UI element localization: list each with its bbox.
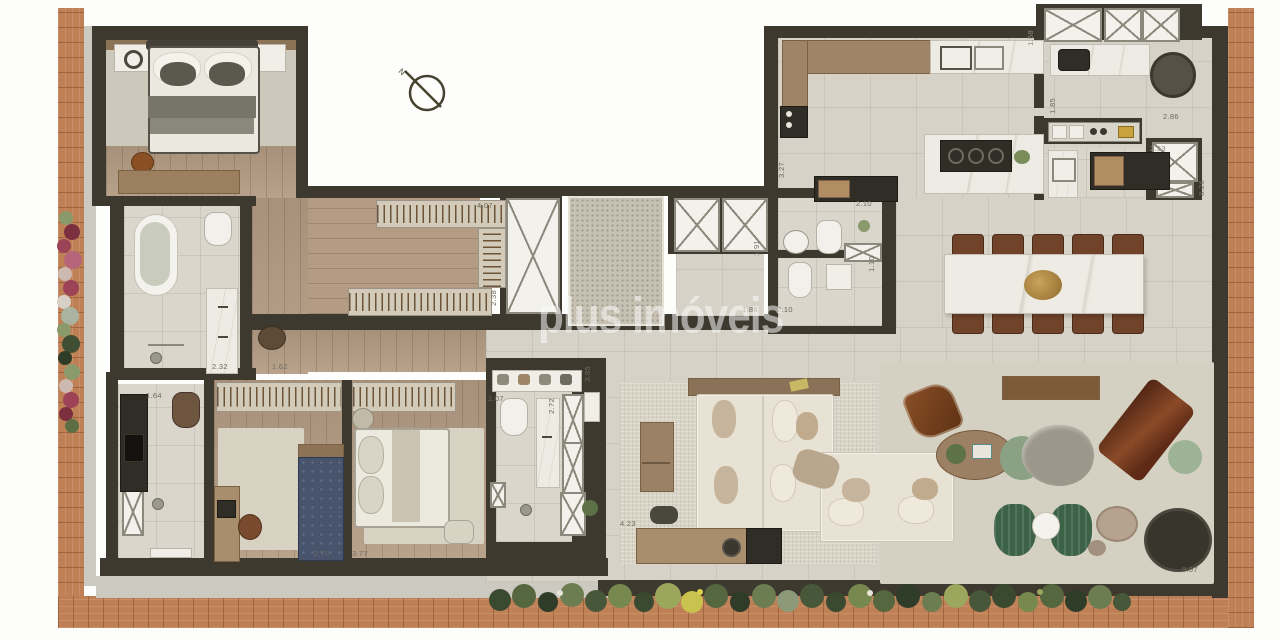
dim-label: 1.85 — [1049, 98, 1057, 114]
stool-sage — [1168, 440, 1202, 474]
shower-head — [150, 352, 162, 364]
bench — [118, 170, 240, 194]
dim-label: 3.77 — [352, 550, 368, 558]
table-books — [972, 444, 992, 459]
dim-label: 2.72 — [548, 398, 556, 414]
plant-small — [858, 220, 870, 232]
wall — [1212, 26, 1228, 598]
toilet-master — [204, 212, 232, 246]
wall — [106, 372, 118, 572]
pillow — [358, 476, 384, 514]
shaft-top — [1142, 8, 1180, 42]
blanket-fold — [150, 118, 254, 134]
robe-stool — [258, 326, 286, 350]
centerpiece-bowl — [1024, 270, 1062, 300]
bed3-laptop — [217, 500, 236, 518]
dim-label: 4.07 — [477, 202, 493, 210]
pillow — [898, 496, 934, 524]
duct-shaft — [722, 198, 768, 252]
pillow — [842, 478, 870, 502]
dim-label: 2.86 — [1163, 113, 1179, 121]
bath3-sink — [124, 434, 144, 462]
dim-label: 4.23 — [620, 520, 636, 528]
appliance — [1052, 125, 1067, 139]
pillow — [772, 400, 798, 442]
shower-drain — [490, 482, 506, 508]
niche-panel — [584, 392, 600, 422]
island-plant — [1014, 150, 1030, 164]
dim-label: 1.64 — [146, 392, 162, 400]
dim-label: 9.07 — [1182, 566, 1198, 574]
faucet — [218, 306, 228, 308]
desk-chair — [650, 506, 678, 524]
cushion — [209, 62, 245, 86]
side-table-white — [1032, 512, 1060, 540]
dim-label: 2.32 — [212, 363, 228, 371]
wall — [204, 380, 214, 560]
dim-label: 3.85 — [584, 366, 592, 382]
dim-label: 2.70 — [314, 550, 330, 558]
appliance-knob — [1090, 128, 1097, 135]
wall — [296, 26, 308, 198]
bath4-shaft — [562, 442, 584, 494]
pillow — [796, 412, 818, 440]
wall — [92, 26, 308, 40]
dim-label: 1.10 — [868, 256, 876, 272]
bathtub-inner — [140, 222, 170, 286]
deck-right — [1228, 8, 1254, 628]
shoes — [518, 374, 530, 385]
pillow — [358, 436, 384, 474]
appliance — [1069, 125, 1084, 139]
dim-label: 1.62 — [272, 363, 288, 371]
burner — [988, 148, 1004, 164]
bed4-blanket — [392, 430, 420, 522]
closet-rail-right — [478, 228, 506, 288]
bed4-chair — [444, 520, 474, 544]
dim-label: 2.10 — [856, 200, 872, 208]
shaft-top — [1044, 8, 1102, 42]
laundry-sink — [1058, 49, 1090, 71]
media-cabinet — [640, 422, 674, 492]
pillow — [712, 400, 736, 438]
cabinet-shelf-line — [642, 462, 670, 464]
watermark-text: plus imóveis — [538, 286, 759, 344]
toilet-bath4 — [500, 398, 528, 436]
wine-bottle — [786, 111, 792, 117]
pouf-beige-small — [1088, 540, 1106, 556]
bath3-door-mat — [150, 548, 192, 558]
kitchen-sink — [974, 46, 1004, 70]
blanket — [148, 96, 256, 118]
wood-bench — [1002, 376, 1100, 400]
bed4-side-table — [352, 408, 374, 430]
floor-plan: N 4.07 2.38 2.32 1.62 1.64 2.70 3.77 1.0… — [0, 0, 1280, 640]
pedestal-sink — [783, 230, 809, 254]
compass-n-label: N — [397, 67, 407, 78]
toilet-bath3 — [172, 392, 200, 428]
compass-icon: N — [397, 67, 444, 110]
armchair-green — [994, 504, 1036, 556]
wine-rack — [780, 106, 808, 138]
cushion — [160, 62, 196, 86]
dim-label: 1.07 — [488, 395, 504, 403]
dim-label: 1.58 — [1027, 30, 1035, 46]
shoes — [560, 374, 572, 385]
shoes — [539, 374, 551, 385]
bath4-shaft-low — [560, 492, 586, 536]
desk-side-table — [746, 528, 782, 564]
toilet-powder-bottom — [788, 262, 812, 298]
bed3-desk — [214, 486, 240, 562]
kitchen-cabinet-left — [782, 40, 808, 108]
wall — [240, 206, 252, 374]
dim-label: 2.53 — [1150, 145, 1166, 153]
wall — [764, 26, 778, 196]
pillow — [912, 478, 938, 500]
niche-plant — [582, 500, 598, 516]
shoes — [497, 374, 509, 385]
bed3-wardrobe — [216, 382, 342, 412]
shaft-top — [1104, 8, 1142, 42]
desk-speaker — [722, 538, 741, 557]
dim-label: 2.38 — [490, 290, 498, 306]
shower-drain — [122, 488, 144, 536]
kitchen-sink — [940, 46, 972, 70]
deck-bottom — [58, 596, 1254, 628]
pouf-beige — [1096, 506, 1138, 542]
bed3-chair — [238, 514, 262, 540]
appliance-yellow — [1118, 126, 1134, 138]
dim-label: 8.26 — [1198, 180, 1206, 196]
duct-shaft — [674, 198, 720, 252]
lamp — [124, 50, 143, 69]
wall — [110, 198, 124, 380]
deck-left — [58, 8, 84, 628]
dim-label: 1.91 — [753, 240, 761, 256]
shower-bar — [148, 344, 184, 346]
service-sink — [1052, 158, 1076, 182]
wine-bottle — [786, 122, 792, 128]
service-cabinet-wood — [1094, 156, 1124, 186]
bath4-shaft — [562, 394, 584, 446]
pillow — [714, 466, 738, 504]
closet-rail-bottom — [348, 288, 492, 316]
table-plant — [946, 444, 966, 464]
powder-drain — [844, 243, 882, 262]
burner — [948, 148, 964, 164]
toilet-powder-top — [816, 220, 842, 254]
bath3-shower-head — [152, 498, 164, 510]
wall-hung-sink — [826, 264, 852, 290]
bath4-shower-head — [520, 504, 532, 516]
bar-console-tray — [818, 180, 850, 198]
sofa-seam — [762, 396, 764, 528]
pillow — [828, 498, 864, 526]
bed3-daybed — [298, 457, 344, 561]
bed4-wardrobe — [352, 382, 456, 412]
faucet — [218, 336, 228, 338]
dim-label: 3.27 — [778, 162, 786, 178]
laundry-basket — [1150, 52, 1196, 98]
wall — [92, 26, 106, 206]
burner — [968, 148, 984, 164]
pouf-dark — [1144, 508, 1212, 572]
appliance-knob — [1100, 128, 1107, 135]
bath4-faucet — [542, 436, 552, 438]
